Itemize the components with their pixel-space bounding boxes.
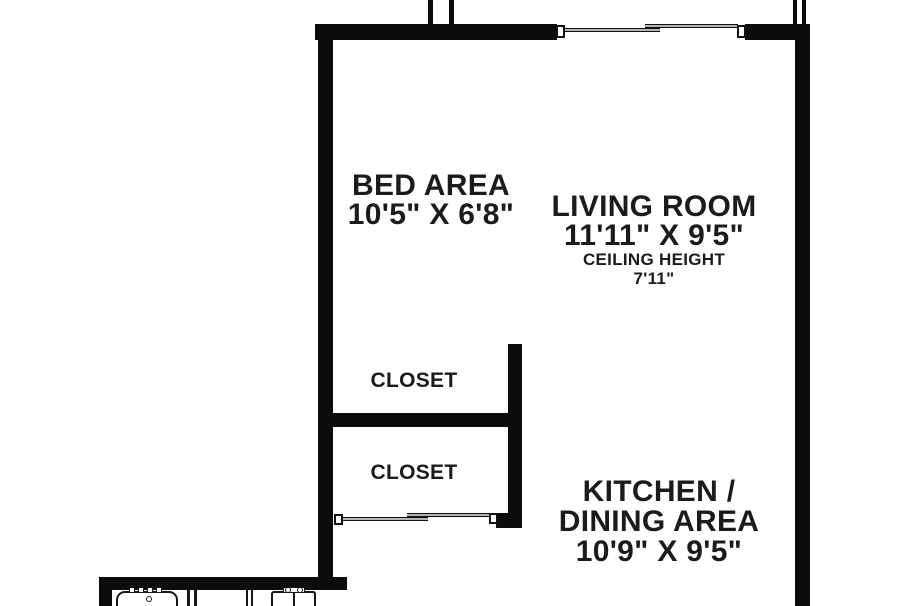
sink-divider-line bbox=[293, 593, 295, 606]
bed-area-dimensions: 10'5" X 6'8" bbox=[348, 200, 514, 229]
floor-plan: BED AREA 10'5" X 6'8" LIVING ROOM 11'11"… bbox=[0, 0, 910, 606]
door-frame-right-cap bbox=[489, 513, 498, 524]
shower-partition-icon bbox=[246, 590, 253, 606]
door-frame-left-cap bbox=[334, 514, 343, 525]
door-panel-left bbox=[343, 517, 428, 521]
faucet-handle-icon bbox=[297, 587, 303, 593]
kitchen-dining-name-line1: KITCHEN / bbox=[559, 477, 760, 507]
door-panel-right bbox=[407, 513, 490, 517]
faucet-handle-icon bbox=[285, 587, 291, 593]
bed-area-label-block: BED AREA 10'5" X 6'8" bbox=[348, 171, 514, 229]
ceiling-height-value: 7'11" bbox=[552, 269, 757, 288]
window-pane-right bbox=[645, 24, 738, 28]
wall-bathroom-left bbox=[99, 577, 112, 606]
faucet-tick-icon bbox=[156, 587, 162, 593]
living-room-label-block: LIVING ROOM 11'11" X 9'5" CEILING HEIGHT… bbox=[552, 192, 757, 288]
wall-stub-above-right-wall bbox=[793, 0, 806, 24]
shower-partition-icon bbox=[187, 590, 197, 606]
kitchen-dining-name-line2: DINING AREA bbox=[559, 507, 760, 537]
closet-bottom-label: CLOSET bbox=[371, 462, 458, 484]
wall-left bbox=[318, 24, 333, 590]
wall-stub-above-bed-area bbox=[428, 0, 454, 24]
ceiling-height-label: CEILING HEIGHT bbox=[552, 250, 757, 269]
faucet-tick-icon bbox=[138, 587, 144, 593]
kitchen-dining-dimensions: 10'9" X 9'5" bbox=[559, 537, 760, 567]
drain-icon bbox=[146, 596, 152, 602]
faucet-tick-icon bbox=[129, 587, 135, 593]
wall-closet-door-jamb bbox=[496, 513, 522, 528]
wall-bathroom-top bbox=[99, 577, 347, 590]
wall-right bbox=[795, 24, 810, 606]
window-pane-left bbox=[565, 28, 660, 32]
wall-closet-right bbox=[508, 344, 522, 527]
wall-closet-divider bbox=[318, 413, 508, 427]
living-room-name: LIVING ROOM bbox=[552, 192, 757, 221]
wall-top-left-segment bbox=[315, 24, 557, 40]
kitchen-dining-label-block: KITCHEN / DINING AREA 10'9" X 9'5" bbox=[559, 477, 760, 567]
faucet-tick-icon bbox=[147, 587, 153, 593]
closet-top-label: CLOSET bbox=[371, 370, 458, 392]
living-room-dimensions: 11'11" X 9'5" bbox=[552, 221, 757, 250]
bed-area-name: BED AREA bbox=[348, 171, 514, 200]
window-frame-left-cap bbox=[556, 25, 565, 38]
window-frame-right-cap bbox=[737, 25, 746, 38]
